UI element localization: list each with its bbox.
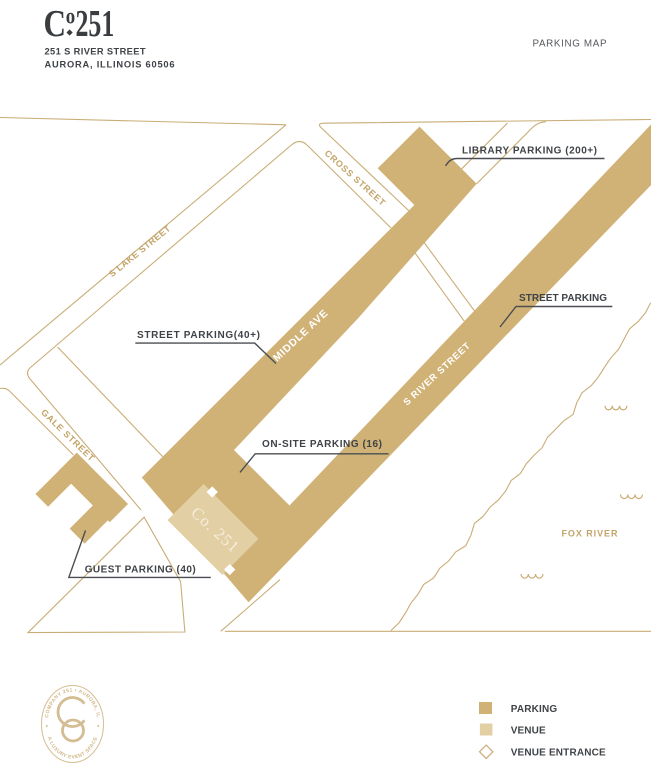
svg-text:251: 251 (76, 3, 115, 45)
svg-text:STREET PARKING(40+): STREET PARKING(40+) (137, 330, 260, 341)
svg-text:STREET PARKING: STREET PARKING (519, 293, 607, 304)
svg-text:251 S RIVER STREET: 251 S RIVER STREET (45, 47, 146, 57)
svg-text:C: C (44, 2, 67, 45)
svg-text:LIBRARY PARKING (200+): LIBRARY PARKING (200+) (462, 146, 597, 157)
svg-text:o: o (66, 3, 75, 29)
svg-text:FOX RIVER: FOX RIVER (562, 529, 619, 539)
svg-text:GUEST PARKING (40): GUEST PARKING (40) (85, 564, 196, 575)
svg-text:ON-SITE PARKING (16): ON-SITE PARKING (16) (262, 439, 382, 450)
svg-text:VENUE ENTRANCE: VENUE ENTRANCE (511, 748, 606, 759)
svg-text:PARKING MAP: PARKING MAP (533, 38, 607, 49)
svg-text:AURORA, ILLINOIS 60506: AURORA, ILLINOIS 60506 (45, 59, 175, 69)
svg-text:VENUE: VENUE (511, 726, 546, 737)
svg-text:PARKING: PARKING (511, 704, 558, 715)
